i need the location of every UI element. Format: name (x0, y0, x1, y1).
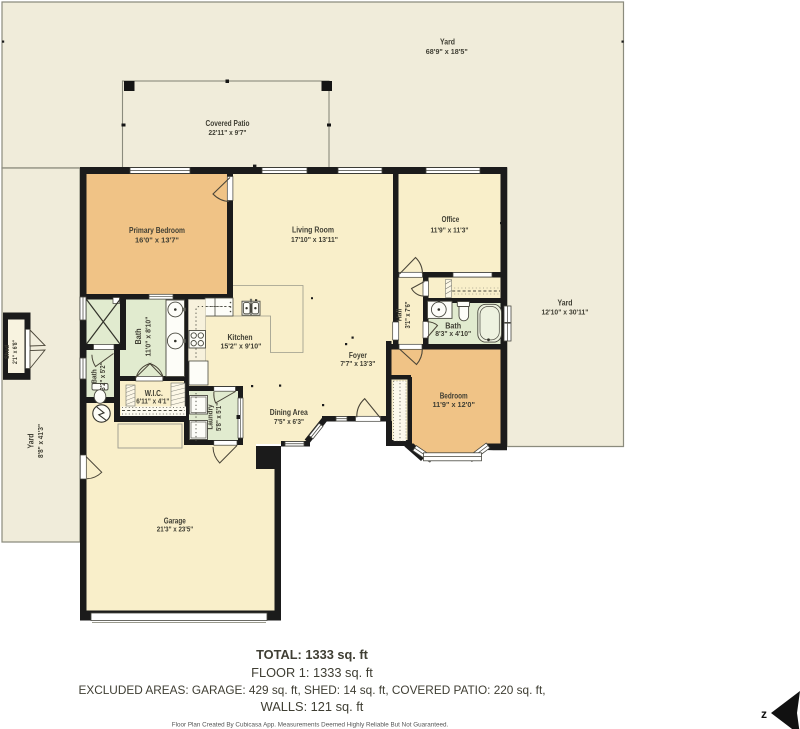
svg-text:Primary Bedroom: Primary Bedroom (129, 226, 185, 235)
svg-text:22'11" x 9'7": 22'11" x 9'7" (209, 128, 247, 137)
svg-text:7'5" x 6'3": 7'5" x 6'3" (274, 417, 304, 426)
svg-text:8'8" x 41'3": 8'8" x 41'3" (36, 424, 45, 458)
svg-text:FLOOR 1: 1333 sq. ft: FLOOR 1: 1333 sq. ft (251, 665, 373, 680)
svg-text:Yard: Yard (558, 299, 573, 308)
svg-text:15'2" x 9'10": 15'2" x 9'10" (221, 342, 262, 351)
svg-text:7'7" x 13'3": 7'7" x 13'3" (340, 359, 375, 368)
svg-text:3'1" x 7'6": 3'1" x 7'6" (405, 302, 412, 329)
svg-text:68'9" x 18'5": 68'9" x 18'5" (426, 47, 468, 56)
svg-text:12'10" x 30'11": 12'10" x 30'11" (542, 308, 589, 317)
svg-text:21'3" x 23'5": 21'3" x 23'5" (157, 525, 194, 534)
svg-text:3'2" x 5'2": 3'2" x 5'2" (100, 363, 107, 391)
svg-text:TOTAL: 1333 sq. ft: TOTAL: 1333 sq. ft (256, 647, 369, 662)
svg-text:Office: Office (442, 215, 460, 224)
svg-text:Bath: Bath (92, 369, 99, 384)
svg-text:11'9" x 11'3": 11'9" x 11'3" (431, 226, 469, 235)
svg-text:Bath: Bath (134, 328, 143, 344)
svg-text:Covered Patio: Covered Patio (206, 119, 250, 128)
svg-text:z: z (761, 707, 767, 721)
svg-text:Shed: Shed (4, 345, 11, 359)
svg-text:2'1" x 6'8": 2'1" x 6'8" (12, 340, 19, 364)
svg-text:11'9" x 12'0": 11'9" x 12'0" (432, 400, 475, 409)
svg-text:Yard: Yard (440, 37, 455, 46)
svg-text:8'3" x 4'10": 8'3" x 4'10" (435, 329, 471, 338)
svg-text:6'11" x 4'1": 6'11" x 4'1" (136, 396, 169, 405)
svg-text:EXCLUDED AREAS: GARAGE: 429 sq: EXCLUDED AREAS: GARAGE: 429 sq. ft, SHED… (78, 683, 545, 697)
svg-text:5'8" x 5'1": 5'8" x 5'1" (216, 403, 223, 431)
svg-text:Yard: Yard (27, 433, 36, 448)
svg-text:Dining Area: Dining Area (270, 408, 309, 417)
svg-text:WALLS: 121 sq. ft: WALLS: 121 sq. ft (261, 699, 364, 714)
svg-text:17'10" x 13'11": 17'10" x 13'11" (291, 235, 338, 244)
svg-text:11'0" x 8'10": 11'0" x 8'10" (144, 316, 153, 356)
svg-text:Kitchen: Kitchen (228, 333, 253, 342)
svg-text:Living Room: Living Room (292, 226, 334, 235)
svg-text:Laundry: Laundry (208, 404, 215, 429)
svg-text:Hall: Hall (397, 309, 404, 322)
svg-text:Floor Plan Created By Cubicasa: Floor Plan Created By Cubicasa App. Meas… (172, 722, 449, 729)
svg-text:16'0" x 13'7": 16'0" x 13'7" (135, 235, 179, 244)
